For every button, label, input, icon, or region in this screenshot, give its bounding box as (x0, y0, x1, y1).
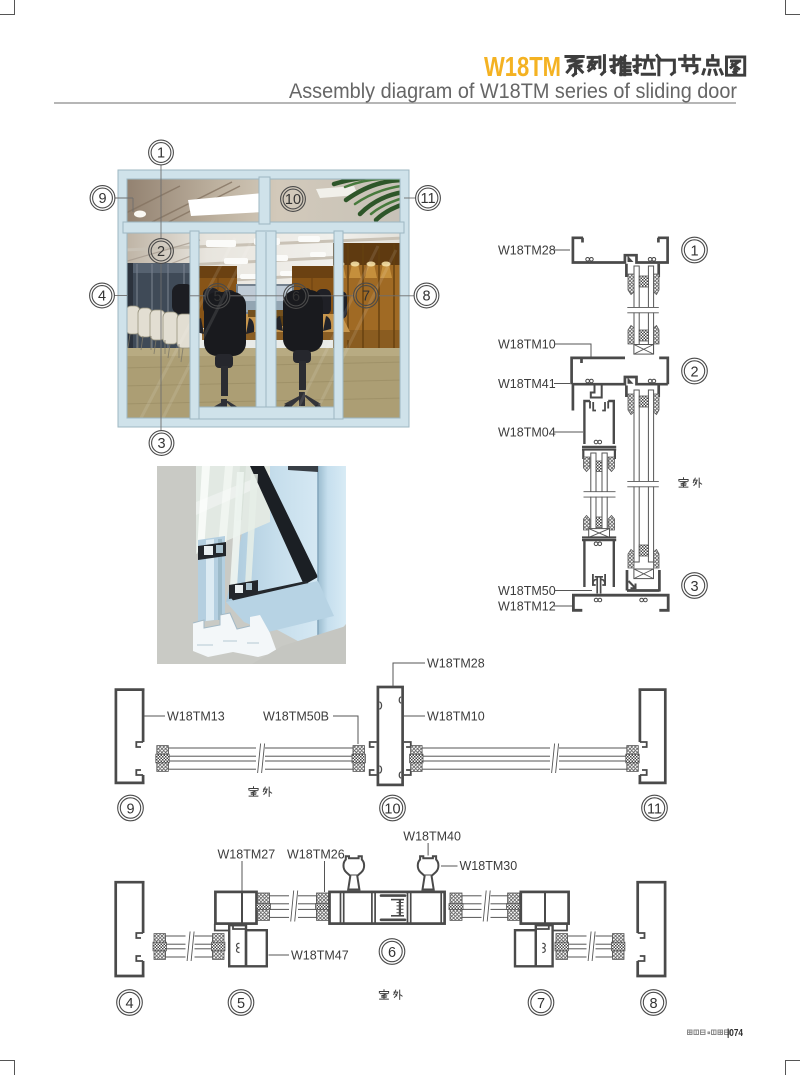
svg-text:W18TM28: W18TM28 (427, 657, 485, 671)
svg-text:3: 3 (690, 579, 698, 595)
svg-text:11: 11 (647, 802, 662, 818)
svg-text:W18TM10: W18TM10 (427, 710, 485, 724)
svg-text:11: 11 (420, 191, 435, 207)
svg-text:5: 5 (237, 996, 245, 1012)
svg-text:|074: |074 (727, 1027, 743, 1039)
svg-text:Assembly diagram of W18TM seri: Assembly diagram of W18TM series of slid… (289, 79, 737, 103)
svg-text:10: 10 (285, 192, 301, 208)
svg-text:6: 6 (292, 289, 300, 305)
svg-text:3: 3 (157, 436, 165, 452)
svg-text:2: 2 (690, 365, 698, 381)
svg-text:W18TM50: W18TM50 (498, 584, 556, 598)
svg-text:W18TM04: W18TM04 (498, 426, 556, 440)
svg-text:2: 2 (157, 244, 165, 260)
svg-text:4: 4 (98, 289, 106, 305)
svg-text:9: 9 (98, 191, 106, 207)
svg-text:1: 1 (157, 146, 165, 162)
svg-text:W18TM10: W18TM10 (498, 338, 556, 352)
svg-text:4: 4 (125, 996, 133, 1012)
svg-text:1: 1 (690, 244, 698, 260)
svg-text:W18TM: W18TM (484, 51, 561, 82)
svg-text:8: 8 (649, 996, 657, 1012)
svg-text:W18TM26: W18TM26 (287, 848, 345, 862)
svg-text:W18TM41: W18TM41 (498, 377, 556, 391)
svg-text:7: 7 (537, 996, 545, 1012)
svg-text:8: 8 (422, 289, 430, 305)
svg-text:W18TM40: W18TM40 (403, 830, 461, 844)
svg-text:W18TM12: W18TM12 (498, 600, 556, 614)
svg-text:10: 10 (384, 802, 400, 818)
svg-text:7: 7 (362, 289, 370, 305)
svg-text:W18TM13: W18TM13 (167, 710, 225, 724)
svg-text:W18TM47: W18TM47 (291, 949, 349, 963)
svg-text:W18TM50B: W18TM50B (263, 710, 329, 724)
svg-text:W18TM28: W18TM28 (498, 244, 556, 258)
svg-text:5: 5 (213, 289, 221, 305)
svg-text:W18TM30: W18TM30 (460, 859, 518, 873)
svg-text:W18TM27: W18TM27 (218, 848, 276, 862)
svg-text:6: 6 (388, 945, 396, 961)
svg-text:9: 9 (126, 802, 134, 818)
